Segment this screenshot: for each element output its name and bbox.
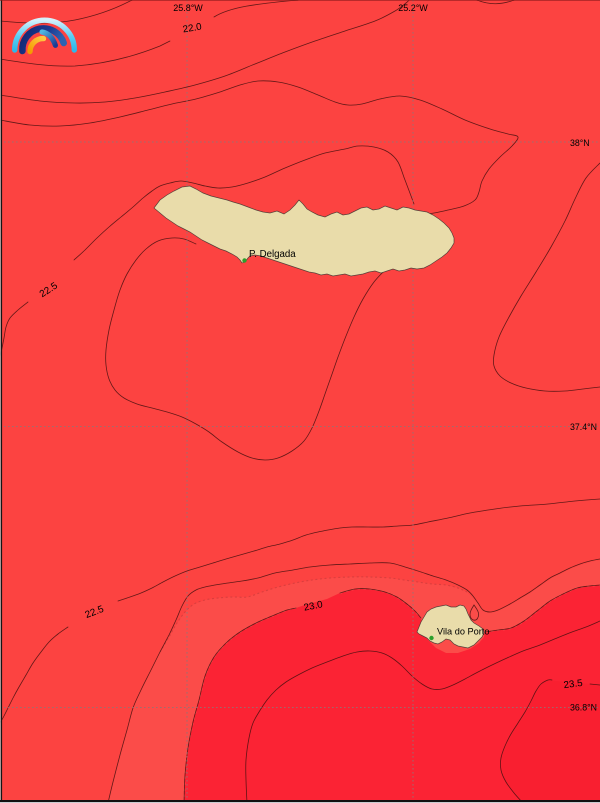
svg-text:38°N: 38°N — [570, 138, 590, 148]
svg-text:25.8°W: 25.8°W — [173, 3, 203, 13]
svg-text:36.8°N: 36.8°N — [570, 703, 597, 713]
svg-text:Vila do Porto: Vila do Porto — [437, 627, 489, 637]
svg-text:25.2°W: 25.2°W — [398, 3, 428, 13]
svg-text:37.4°N: 37.4°N — [570, 422, 597, 432]
svg-text:P. Delgada: P. Delgada — [249, 249, 296, 260]
